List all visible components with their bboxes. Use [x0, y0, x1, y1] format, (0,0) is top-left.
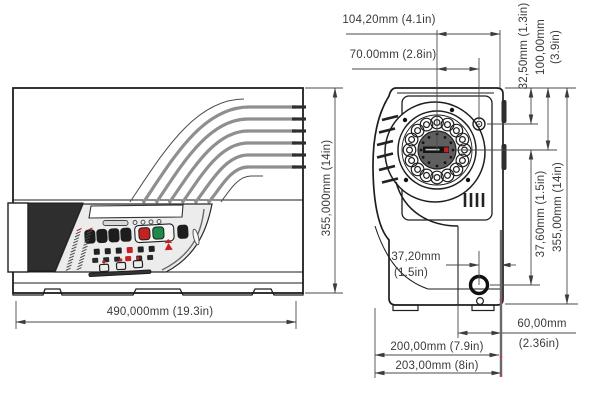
dim-label-right-second-in: (3.9in)	[550, 30, 562, 64]
panel-button	[178, 225, 189, 239]
capillary-tubes	[143, 107, 296, 203]
dim-label-right-second-mm: 100,00mm	[535, 19, 547, 75]
lcd-display	[89, 205, 183, 218]
hinge-bump	[502, 100, 507, 123]
dim-label-port-inset-in: (1.5in)	[394, 267, 428, 279]
dim-label-depth-total: 203,00mm (8in)	[395, 360, 478, 372]
panel-slider	[103, 221, 128, 226]
green-start-button	[153, 227, 165, 240]
front-feet	[13, 289, 303, 295]
dim-label-right-first: 32,50mm (1.3in)	[518, 3, 530, 90]
front-left-latch	[8, 203, 28, 272]
panel-button	[109, 229, 120, 243]
panel-button	[121, 228, 132, 242]
dim-label-port-inset-mm: 37,20mm	[391, 251, 440, 263]
hinge-bump	[502, 144, 507, 170]
panel-button	[97, 229, 108, 243]
dim-label-top-inner: 70.00mm (2.8in)	[350, 49, 437, 61]
front-view	[8, 88, 306, 295]
dim-label-rear-offset-in: (2.36in)	[519, 338, 560, 350]
technical-drawing: 104,20mm (4.1in) 70.00mm (2.8in) 32,50mm…	[0, 0, 600, 400]
dim-label-side-mid: 37,60mm (1.5in)	[535, 171, 547, 258]
dim-label-rear-offset-mm: 60,00mm	[517, 318, 566, 330]
dim-label-front-width: 490,000mm (19.3in)	[107, 306, 214, 318]
dim-label-depth-body: 200,00mm (7.9in)	[390, 341, 483, 353]
rotor-brand-red-mark	[444, 148, 449, 153]
control-panel	[55, 204, 212, 278]
dim-label-front-height: 355,000mm (14in)	[321, 140, 333, 237]
drawing-linework	[0, 0, 600, 400]
dim-label-top-outer: 104,20mm (4.1in)	[342, 14, 435, 26]
red-stop-button	[139, 227, 151, 240]
dim-label-side-height: 355,00mm (14in)	[552, 162, 564, 252]
